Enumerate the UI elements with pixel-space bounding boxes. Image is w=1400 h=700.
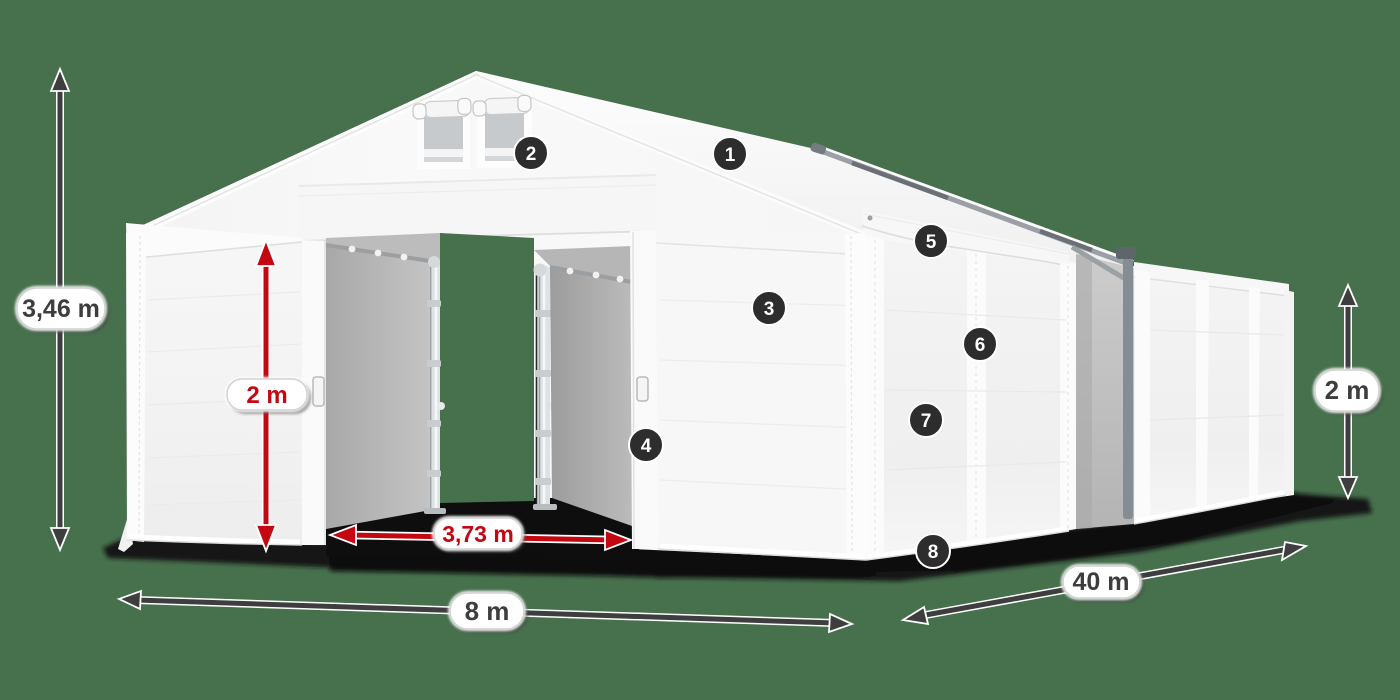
svg-text:8 m: 8 m [465,596,510,626]
svg-text:2: 2 [526,144,537,165]
svg-text:3,46 m: 3,46 m [22,295,100,323]
svg-text:8: 8 [928,542,939,563]
svg-text:4: 4 [641,436,652,457]
svg-text:3: 3 [764,299,775,320]
svg-text:40 m: 40 m [1073,568,1130,596]
svg-text:3,73 m: 3,73 m [442,521,514,547]
svg-text:5: 5 [926,232,937,253]
svg-text:2 m: 2 m [246,382,287,409]
svg-text:7: 7 [921,411,932,432]
svg-text:1: 1 [725,145,736,166]
svg-text:2 m: 2 m [1325,375,1370,405]
svg-text:6: 6 [975,335,986,356]
